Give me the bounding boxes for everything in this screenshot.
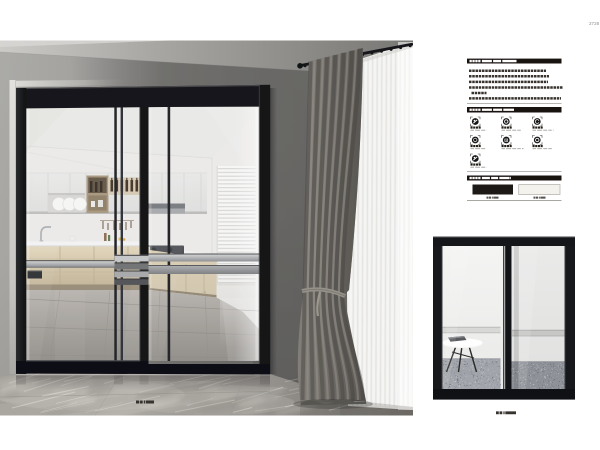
svg-text:2728: 2728 bbox=[589, 21, 600, 26]
